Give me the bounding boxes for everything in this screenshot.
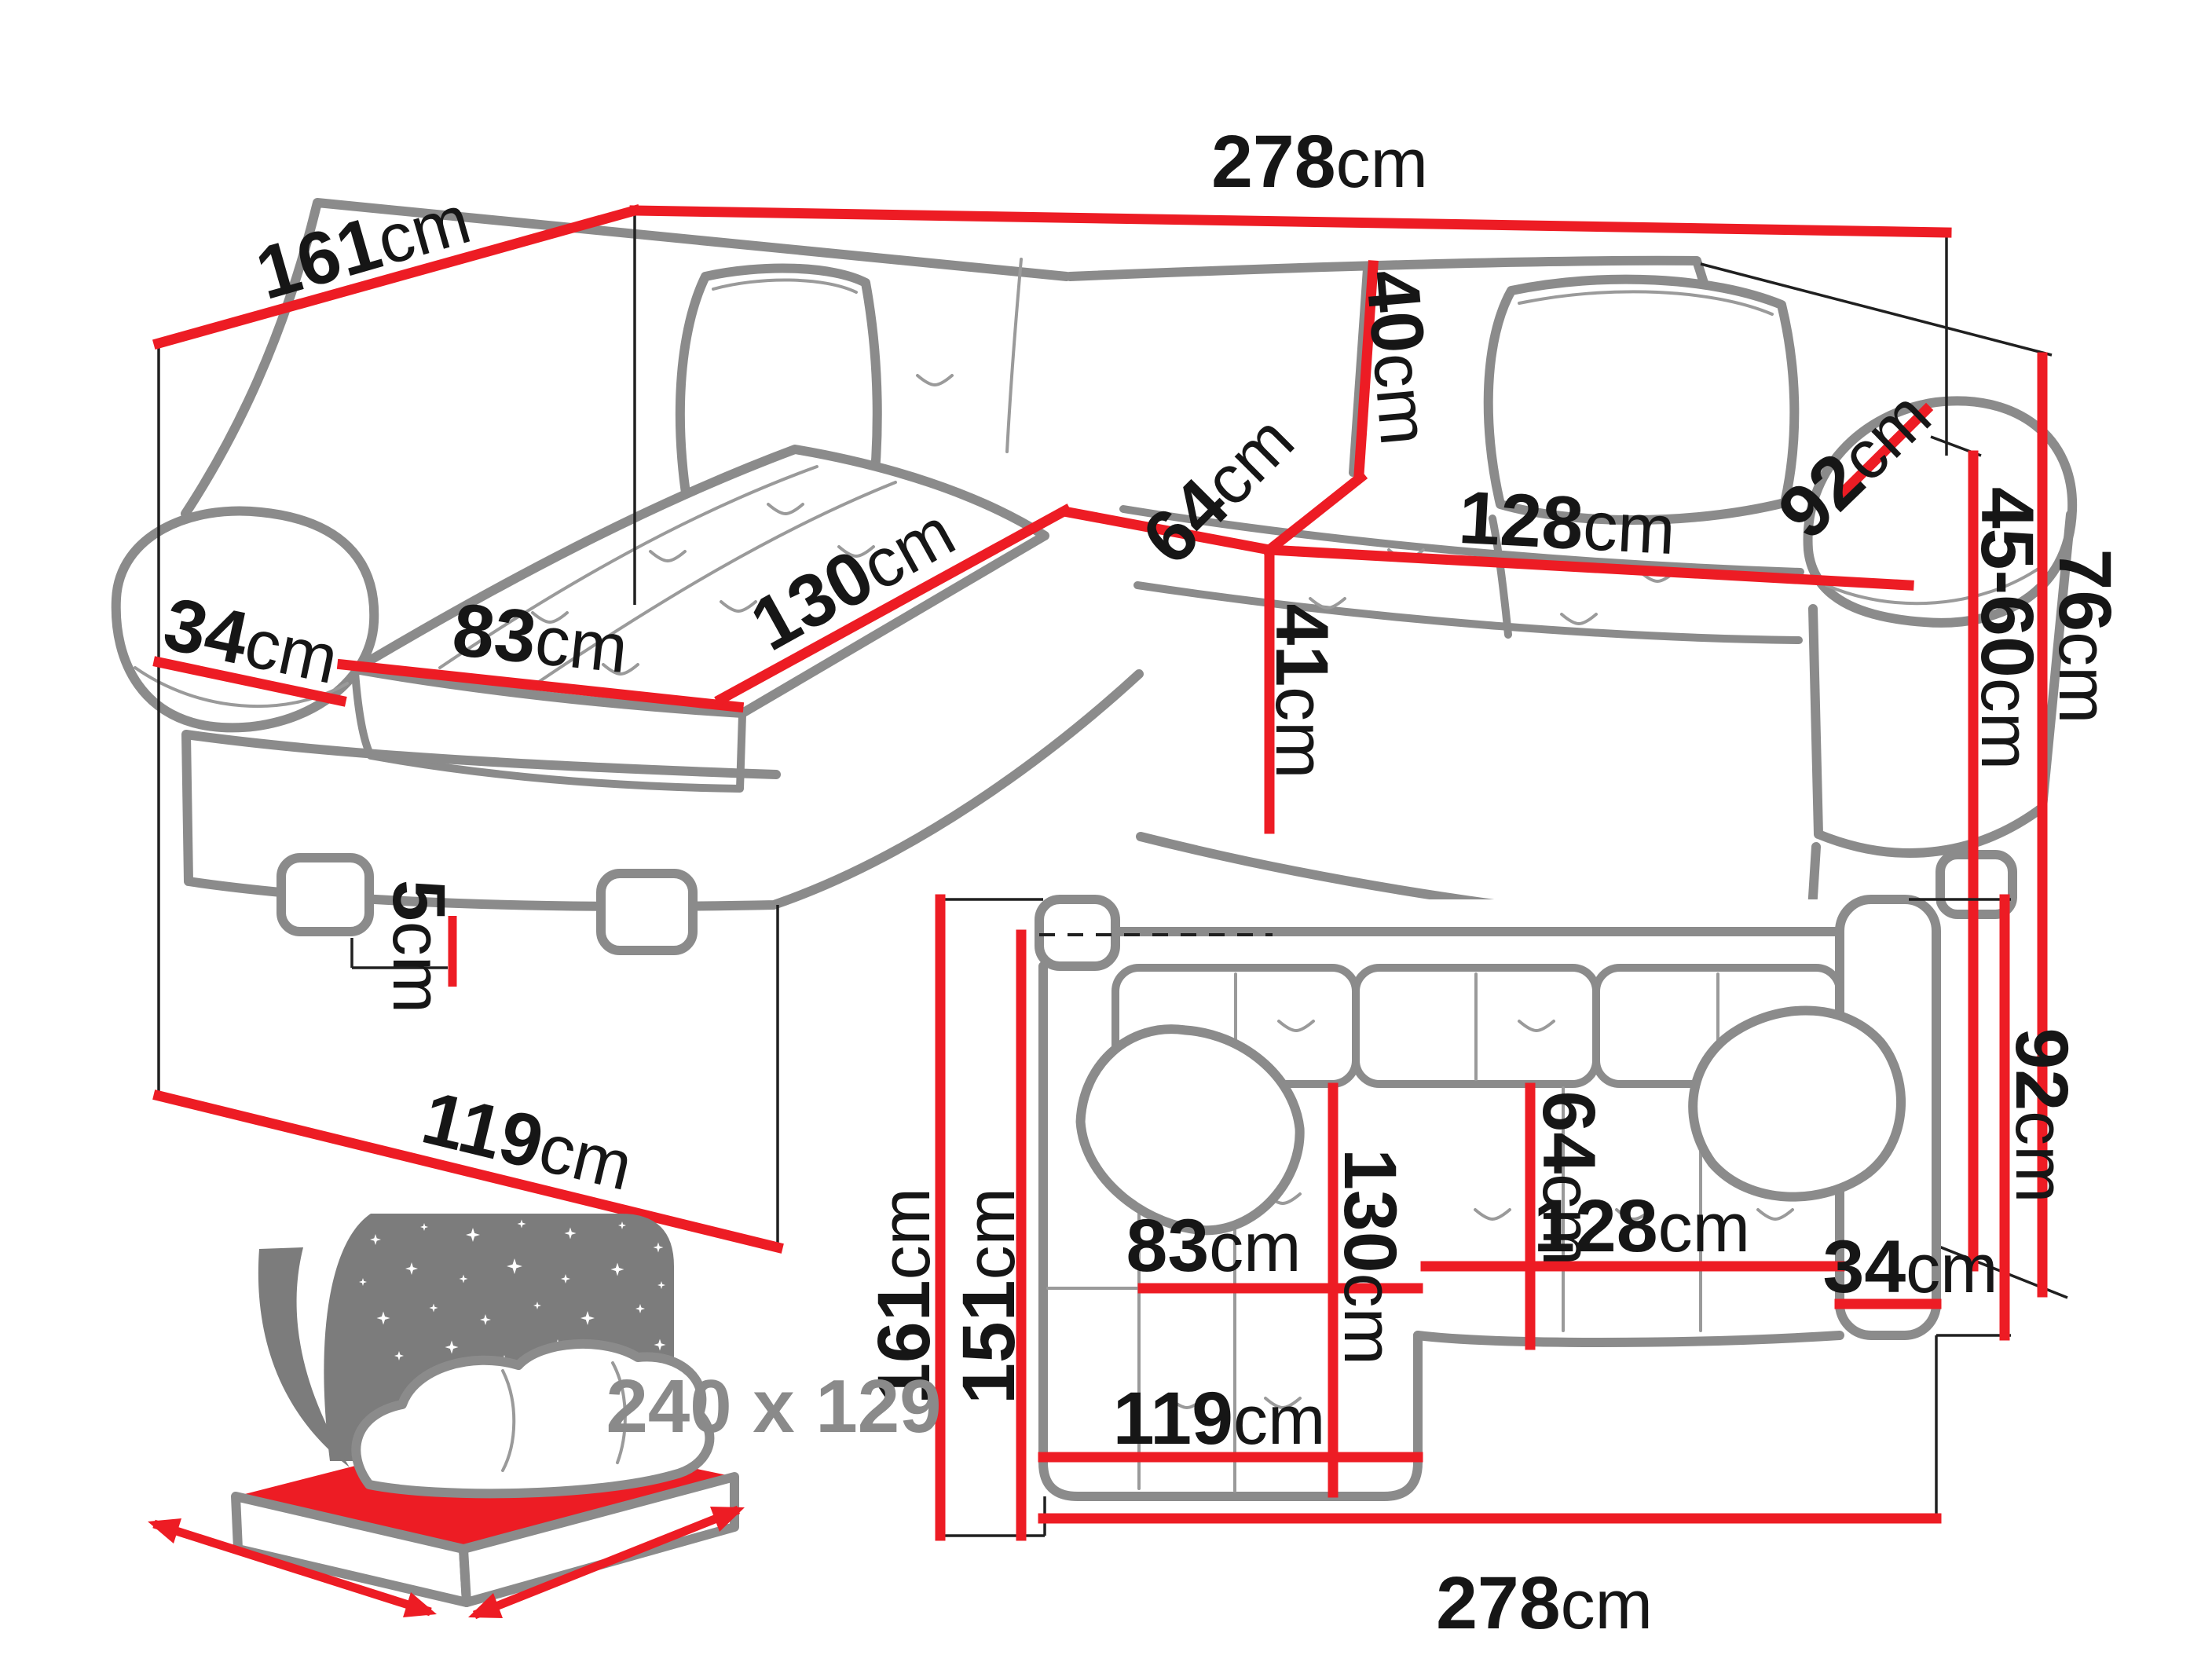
plan-label-total-width: 278cm <box>1436 1562 1653 1645</box>
label-seat-height-3d: 41cm <box>1260 604 1343 779</box>
page: 278cm 161cm 34cm 83cm 130cm 64cm 40cm 12… <box>0 0 2212 1659</box>
plan-label-chaise-length: 130cm <box>1328 1148 1412 1365</box>
sleeping-area-icon: 240 x 129 <box>148 1214 942 1618</box>
backrest-seam-left <box>1007 259 1021 452</box>
sofa-dimension-diagram: 278cm 161cm 34cm 83cm 130cm 64cm 40cm 12… <box>0 0 2212 1659</box>
sofa-3d-drawing <box>116 203 2072 993</box>
sleeping-area-size-label: 240 x 129 <box>606 1364 941 1448</box>
dim-line-total-width <box>635 211 1946 233</box>
plan-seat-front-edge <box>1418 1335 1840 1342</box>
leg-chaise-mid <box>601 873 693 950</box>
plan-label-seat-width: 128cm <box>1533 1185 1750 1268</box>
label-backrest-height-3d: 40cm <box>1350 266 1448 448</box>
label-leg-height-3d: 5cm <box>377 880 460 1013</box>
label-headrest-height-3d: 45-60cm <box>1965 487 2049 770</box>
plan-view: 161cm 151cm 130cm 64cm 83cm 128cm 34cm 9… <box>862 899 2083 1645</box>
leg-chaise-front <box>281 858 369 932</box>
label-total-height-3d: 76cm <box>2043 549 2126 724</box>
plan-armrest-left <box>1039 899 1115 966</box>
plan-label-inner-depth: 151cm <box>947 1188 1031 1404</box>
plan-label-chaise-depth: 119cm <box>1113 1377 1326 1460</box>
plan-label-armrest-width: 34cm <box>1823 1225 1998 1309</box>
label-total-width-3d: 278cm <box>1211 120 1428 203</box>
label-total-depth-3d: 161cm <box>247 176 478 316</box>
plan-label-armrest-length: 92cm <box>2000 1028 2083 1203</box>
plan-label-chaise-seat-width: 83cm <box>1126 1204 1302 1287</box>
label-seat-width-3d: 128cm <box>1456 476 1677 570</box>
